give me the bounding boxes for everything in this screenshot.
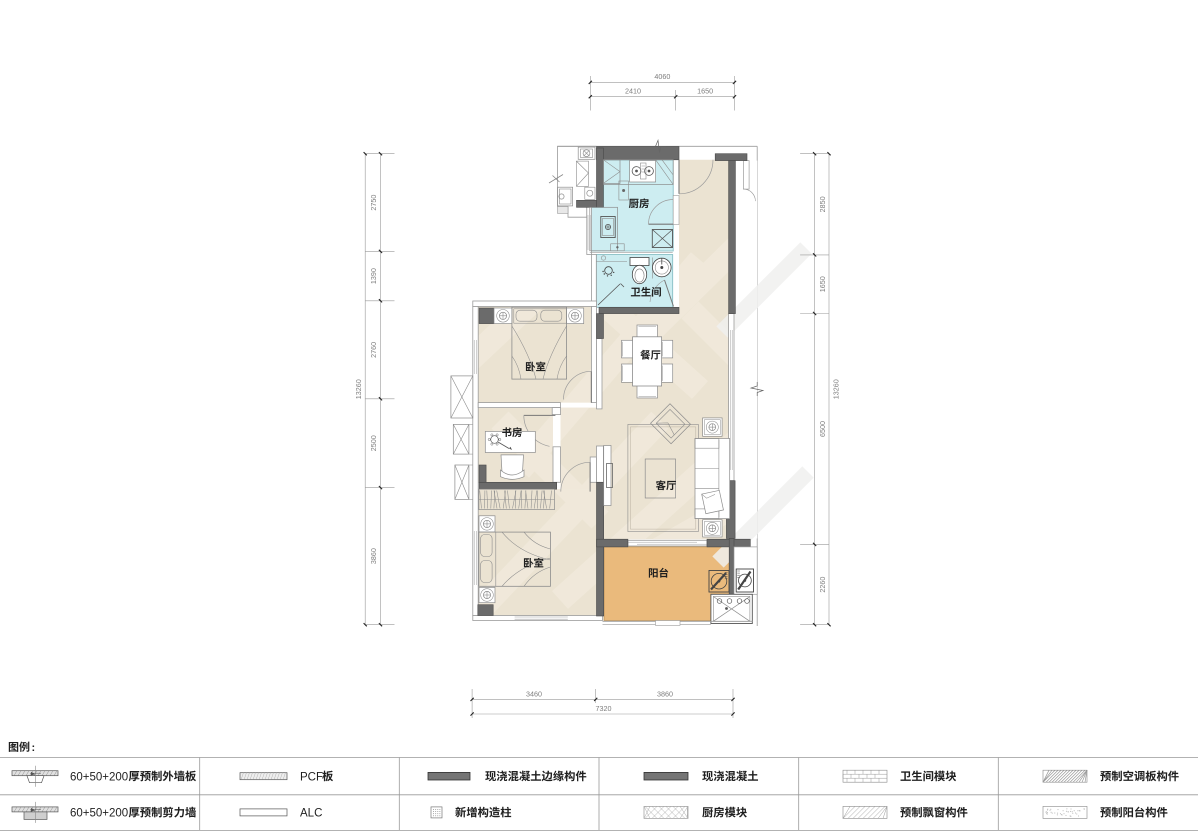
svg-text:1650: 1650 — [818, 276, 827, 292]
svg-text:2850: 2850 — [818, 196, 827, 212]
svg-text:1390: 1390 — [369, 268, 378, 284]
svg-text:13260: 13260 — [354, 379, 363, 399]
svg-text:2500: 2500 — [369, 435, 378, 451]
svg-text:60+50+200: 60+50+200 — [70, 808, 128, 820]
svg-text:13260: 13260 — [832, 379, 841, 399]
svg-text:3460: 3460 — [526, 689, 542, 698]
svg-text:2260: 2260 — [818, 577, 827, 593]
svg-text:7320: 7320 — [596, 704, 612, 713]
svg-text:4060: 4060 — [654, 72, 670, 81]
svg-text:PCF: PCF — [300, 771, 323, 783]
svg-text:ALC: ALC — [300, 808, 322, 820]
svg-text:2750: 2750 — [369, 195, 378, 211]
svg-text:2760: 2760 — [369, 342, 378, 358]
svg-text:6500: 6500 — [818, 421, 827, 437]
svg-text::: : — [32, 742, 36, 754]
svg-text:2410: 2410 — [625, 87, 641, 96]
svg-text:60+50+200: 60+50+200 — [70, 771, 128, 783]
svg-text:3860: 3860 — [369, 548, 378, 564]
svg-text:3860: 3860 — [657, 689, 673, 698]
svg-text:1650: 1650 — [697, 87, 713, 96]
